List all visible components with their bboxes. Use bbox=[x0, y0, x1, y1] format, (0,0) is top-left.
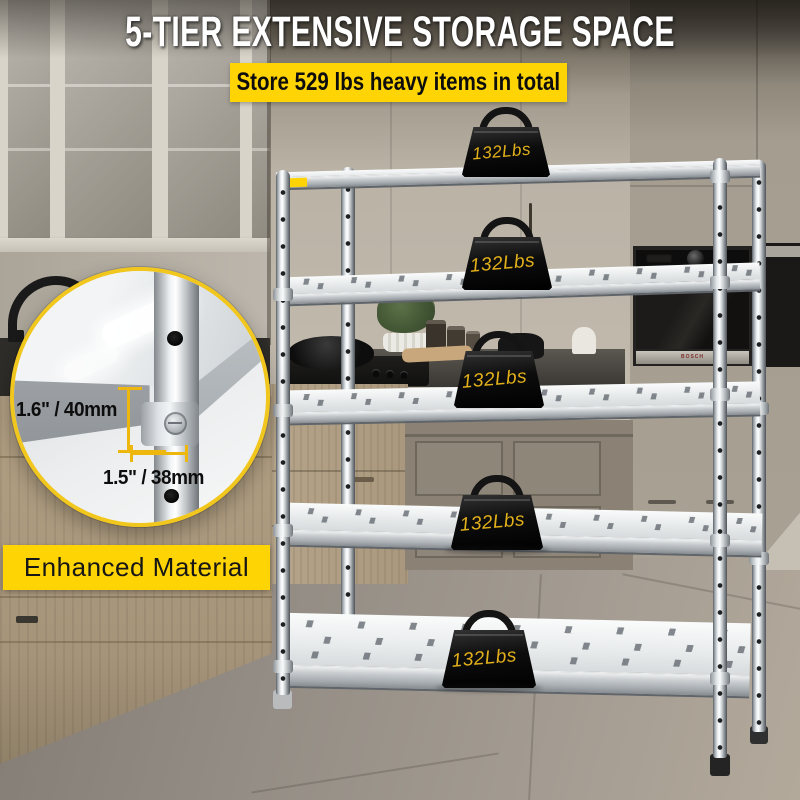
pole-collar bbox=[273, 288, 293, 301]
pole-collar bbox=[710, 388, 730, 401]
enhanced-material-badge: Enhanced Material bbox=[3, 545, 270, 590]
dimension-line-vertical bbox=[127, 387, 130, 453]
product-marketing-image: BOSCH bbox=[0, 0, 800, 800]
detail-callout-circle: 1.6" / 40mm 1.5" / 38mm bbox=[10, 267, 270, 527]
oven-display bbox=[646, 254, 672, 263]
pole-collar bbox=[710, 276, 730, 289]
shelf-pole-back-right bbox=[752, 160, 766, 732]
weight-label: 132Lbs bbox=[461, 139, 542, 166]
weight-shadow bbox=[445, 546, 548, 554]
weight-label: 132Lbs bbox=[453, 365, 536, 394]
dimension-line-horizontal bbox=[130, 452, 188, 455]
weight-tier-4: 132Lbs bbox=[451, 475, 543, 550]
measure-vertical-label: 1.6" / 40mm bbox=[16, 399, 117, 422]
weight-label: 132Lbs bbox=[441, 644, 527, 673]
stove-knob bbox=[386, 370, 394, 378]
stove-knob bbox=[400, 371, 408, 379]
weight-tier-5: 132Lbs bbox=[442, 610, 536, 688]
pole-hole bbox=[167, 331, 183, 346]
weight-label: 132Lbs bbox=[461, 249, 544, 278]
vase bbox=[572, 327, 596, 354]
pole-collar bbox=[273, 524, 293, 537]
weight-body: 132Lbs bbox=[462, 127, 550, 177]
second-oven-trim bbox=[766, 246, 800, 257]
pole-collar bbox=[710, 672, 730, 685]
weight-tier-2: 132Lbs bbox=[462, 217, 552, 290]
capacity-banner-text: Store 529 lbs heavy items in total bbox=[237, 68, 561, 97]
dimension-cap bbox=[185, 445, 188, 462]
drawer-handle bbox=[16, 616, 38, 623]
drawer-seam bbox=[0, 641, 272, 643]
weight-body: 132Lbs bbox=[462, 237, 552, 290]
weight-body: 132Lbs bbox=[442, 630, 536, 688]
weight-tier-1: 132Lbs bbox=[462, 107, 550, 177]
weight-tier-3: 132Lbs bbox=[454, 331, 544, 408]
pole-collar bbox=[710, 534, 730, 547]
capacity-banner: Store 529 lbs heavy items in total bbox=[230, 63, 567, 102]
stove-knob bbox=[372, 369, 380, 377]
wok bbox=[288, 336, 374, 370]
cabinet-seam bbox=[630, 185, 758, 187]
pole-collar bbox=[273, 660, 293, 673]
drawer-seam bbox=[0, 596, 272, 598]
shelf-pole-front-left bbox=[276, 170, 290, 695]
shelf-pole-front-right bbox=[713, 158, 727, 758]
pole-collar bbox=[710, 170, 730, 183]
cabinet-handle bbox=[648, 500, 676, 504]
clamp-screw bbox=[164, 412, 187, 435]
weight-body: 132Lbs bbox=[454, 351, 544, 408]
second-oven bbox=[766, 243, 800, 367]
dimension-cap bbox=[130, 445, 133, 462]
headline-title: 5-TIER EXTENSIVE STORAGE SPACE bbox=[120, 8, 680, 57]
pole-collar bbox=[273, 404, 293, 417]
weight-shadow bbox=[436, 684, 541, 692]
pole-hole bbox=[164, 489, 179, 503]
oven-brand-band: BOSCH bbox=[636, 351, 749, 364]
dimension-cap bbox=[118, 387, 142, 390]
panel-rail bbox=[405, 434, 633, 437]
weight-body: 132Lbs bbox=[451, 495, 543, 550]
measure-horizontal-label: 1.5" / 38mm bbox=[103, 467, 204, 490]
weight-label: 132Lbs bbox=[450, 508, 534, 537]
